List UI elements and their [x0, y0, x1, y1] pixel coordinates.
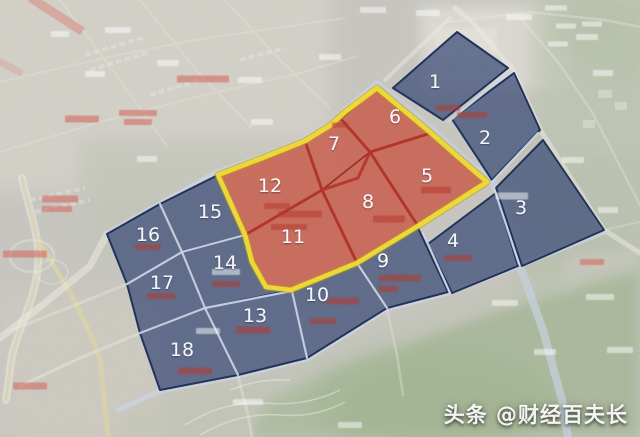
zone-17-label: 17 [150, 272, 174, 294]
zone-15-label: 15 [198, 201, 222, 223]
zone-7-label: 7 [328, 133, 340, 155]
zone-16-label: 16 [136, 224, 160, 246]
zone-1-label: 1 [429, 71, 441, 93]
zone-14-label: 14 [213, 252, 237, 274]
satellite-grain [0, 0, 640, 437]
zone-6-label: 6 [389, 106, 401, 128]
zone-13-label: 13 [243, 305, 267, 327]
zone-10-label: 10 [305, 284, 329, 306]
zone-12-label: 12 [258, 175, 282, 197]
zone-2-label: 2 [479, 127, 491, 149]
zone-3-label: 3 [515, 197, 527, 219]
satellite-planning-map: 123456789101112131415161718 头条 @财经百夫长 [0, 0, 640, 437]
zone-5-label: 5 [421, 165, 433, 187]
zone-11-label: 11 [281, 226, 305, 248]
zone-8-label: 8 [362, 191, 374, 213]
zone-18-label: 18 [170, 339, 194, 361]
map-canvas: 123456789101112131415161718 [0, 0, 640, 437]
zone-4-label: 4 [447, 230, 459, 252]
zone-9-label: 9 [377, 250, 389, 272]
